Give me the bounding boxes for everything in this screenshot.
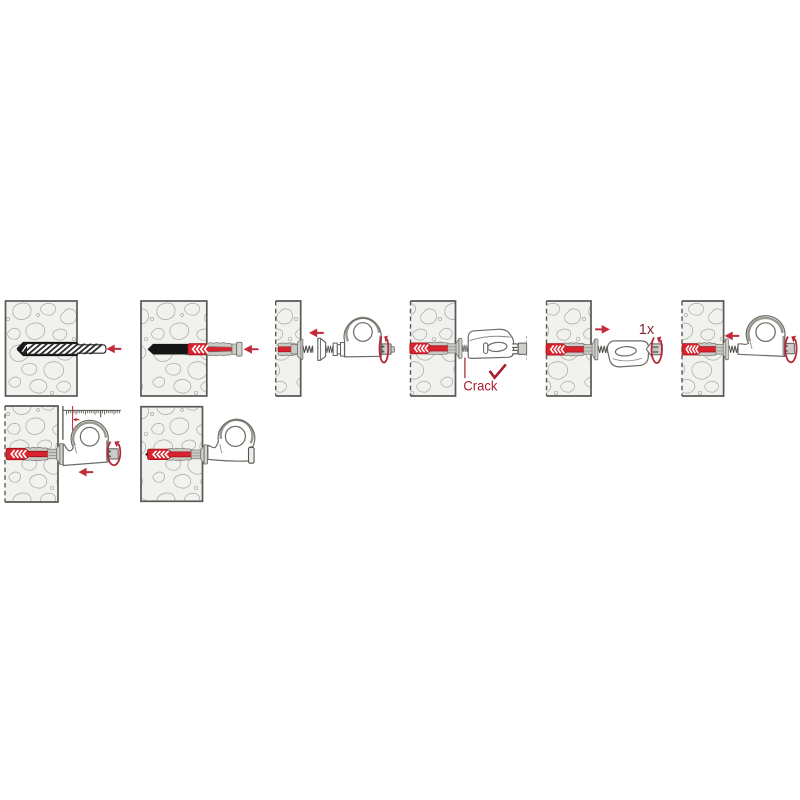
svg-text:Crack: Crack — [463, 378, 497, 393]
svg-text:1x: 1x — [639, 322, 655, 338]
